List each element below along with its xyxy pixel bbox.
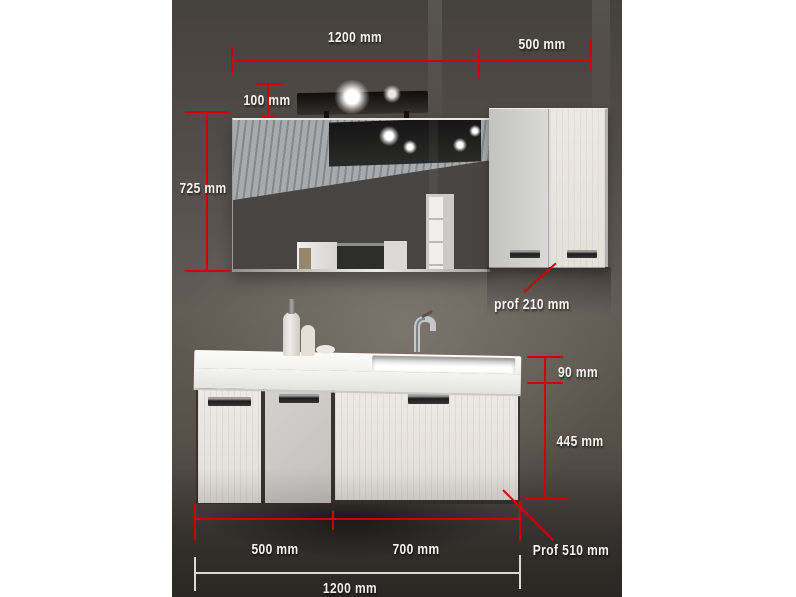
dim-tick (256, 83, 283, 85)
dim-line-bottom (195, 518, 520, 520)
dim-label-base-right-width: 700 mm (392, 541, 439, 558)
wall-cabinet-right-handle (567, 250, 597, 258)
dim-label-base-height: 445 mm (556, 433, 603, 450)
dim-line-total-width (195, 572, 520, 574)
reflected-lamp-glow (469, 125, 481, 137)
dim-tick (194, 504, 196, 540)
reflected-wood-panel (299, 248, 311, 270)
dim-label-base-left-width: 500 mm (251, 541, 298, 558)
dim-label-total-width: 1200 mm (323, 580, 377, 597)
wall-cabinet-left-door (489, 109, 549, 268)
lamp-glow (334, 80, 370, 114)
soap-dish (316, 345, 335, 354)
reflected-lamp-glow (453, 138, 467, 152)
dim-tick (527, 356, 563, 358)
reflected-cabinet (384, 241, 407, 271)
dim-label-mirror-width: 1200 mm (328, 29, 382, 46)
screenshot-canvas: 1200 mm 500 mm 100 mm 725 mm prof 210 mm… (0, 0, 796, 597)
wall-cabinet-right-door (550, 109, 605, 268)
dim-label-mirror-height: 725 mm (179, 180, 226, 197)
sink-basin (372, 355, 515, 373)
dim-line-top (232, 60, 591, 62)
floor-shadow (172, 468, 622, 597)
dim-label-cabinet-depth: prof 210 mm (494, 296, 570, 313)
dim-label-basin-height: 90 mm (558, 364, 598, 381)
soap-dispenser-pump (288, 299, 295, 314)
tumbler (301, 325, 315, 356)
mirror (232, 118, 490, 272)
countertop (194, 350, 522, 396)
dim-tick (332, 511, 334, 530)
dim-tick (261, 116, 275, 118)
dim-tick (194, 557, 196, 591)
reflected-appliance (337, 243, 384, 271)
reflected-lamp-glow (379, 126, 399, 146)
dim-tick (590, 40, 592, 70)
dim-label-lamp-height: 100 mm (243, 92, 290, 109)
lamp-glow (383, 85, 401, 103)
dim-label-wall-cabinet-width: 500 mm (518, 36, 565, 53)
vanity-drawer-handle (408, 394, 449, 404)
wall-cabinet (489, 108, 608, 267)
dim-label-base-depth: Prof 510 mm (533, 542, 609, 559)
product-photo: 1200 mm 500 mm 100 mm 725 mm prof 210 mm… (172, 0, 622, 597)
soap-dispenser (283, 312, 300, 356)
wall-cabinet-left-handle (510, 250, 540, 258)
reflected-lamp-glow (403, 140, 417, 154)
dim-tick (185, 111, 230, 113)
wall-light-streak (592, 0, 610, 112)
dim-tick (231, 47, 233, 75)
vanity-middle-handle (279, 394, 319, 403)
dim-tick (478, 50, 480, 78)
dim-tick (526, 498, 568, 500)
faucet (408, 308, 438, 352)
dim-line-right-heights (544, 357, 546, 500)
dim-tick (527, 382, 563, 384)
dim-tick (185, 270, 230, 272)
vanity-left-handle (208, 397, 251, 406)
mirror-bottom-edge (233, 269, 490, 272)
dim-tick (519, 555, 521, 589)
mirror-sheen (429, 120, 438, 272)
